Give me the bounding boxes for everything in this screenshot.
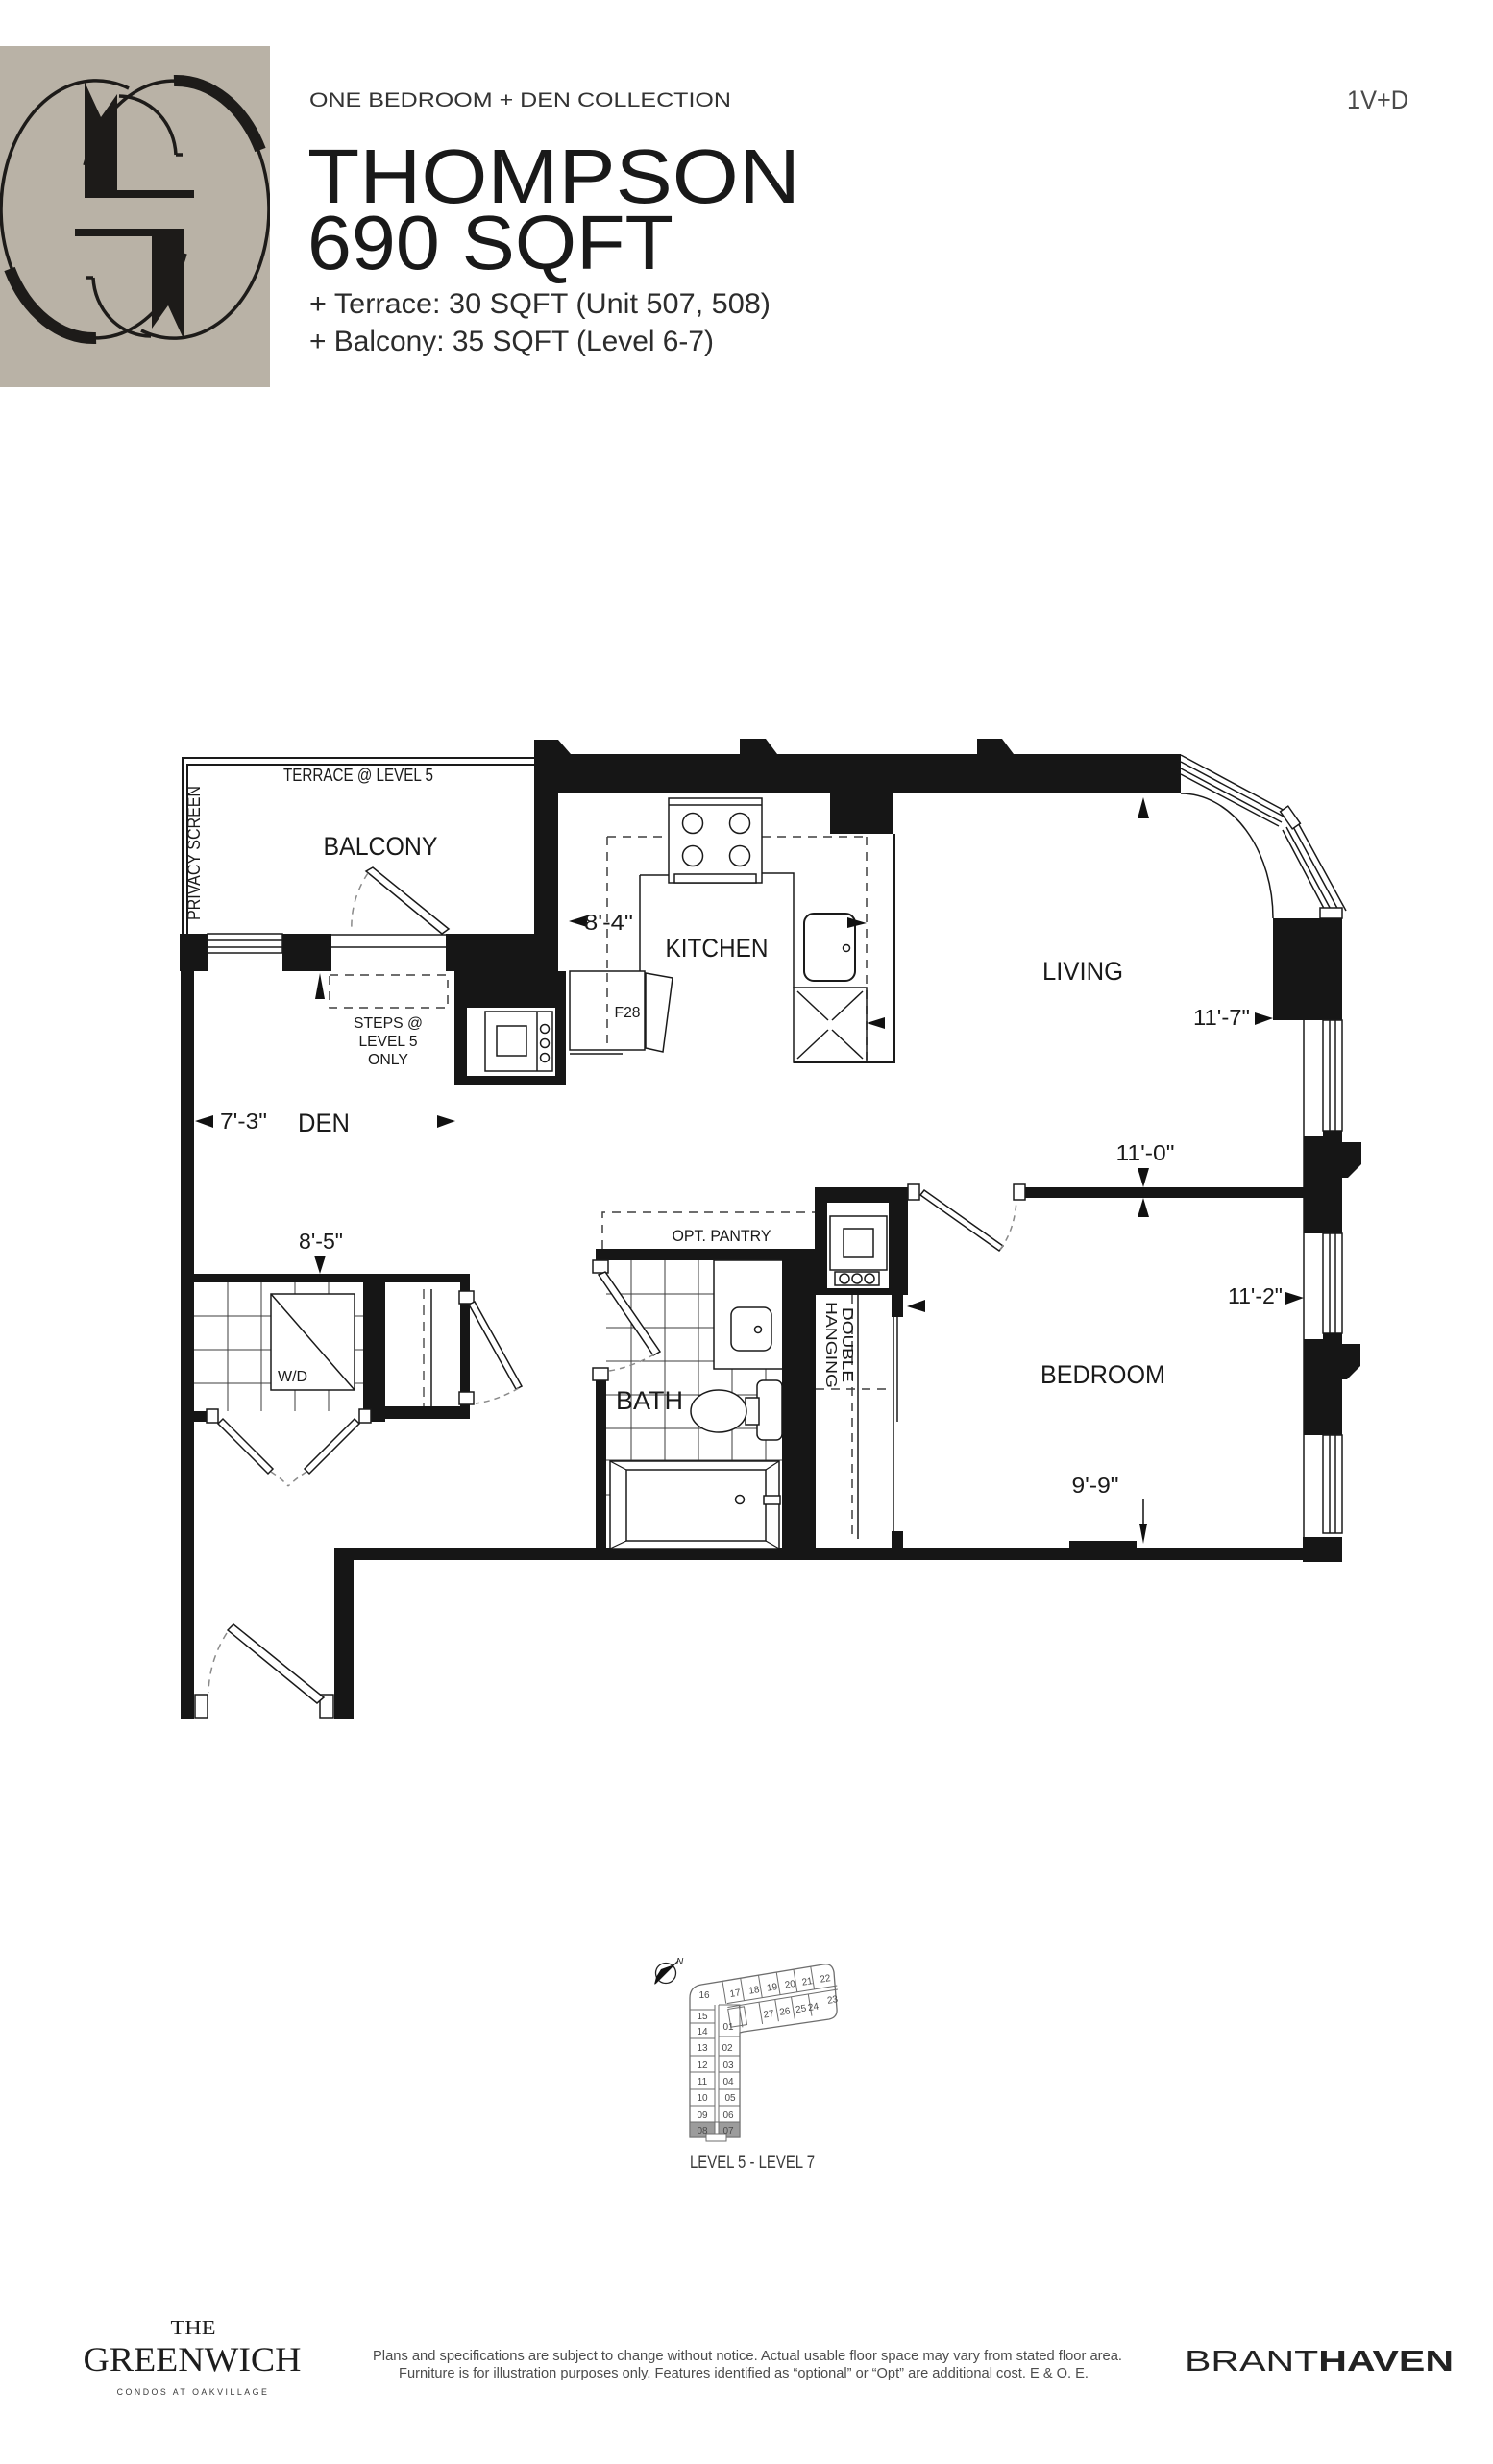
svg-text:26: 26 <box>779 2006 792 2018</box>
svg-text:25: 25 <box>795 2003 807 2015</box>
svg-text:08: 08 <box>697 2126 708 2136</box>
svg-text:27: 27 <box>763 2009 775 2021</box>
svg-text:Furniture is for illustration: Furniture is for illustration purposes o… <box>399 2366 1089 2381</box>
svg-text:BEDROOM: BEDROOM <box>1040 1360 1165 1389</box>
svg-text:LIVING: LIVING <box>1042 957 1123 986</box>
svg-text:1V+D: 1V+D <box>1347 85 1408 114</box>
svg-text:19: 19 <box>766 1982 778 1994</box>
svg-text:LEVEL 5: LEVEL 5 <box>359 1034 418 1050</box>
svg-text:Plans and specifications are s: Plans and specifications are subject to … <box>373 2349 1122 2364</box>
svg-text:22: 22 <box>820 1973 832 1986</box>
svg-text:10: 10 <box>697 2093 708 2104</box>
svg-text:11'-0": 11'-0" <box>1116 1140 1175 1165</box>
svg-text:ONLY: ONLY <box>368 1052 408 1068</box>
svg-text:13: 13 <box>697 2043 708 2054</box>
svg-text:03: 03 <box>722 2061 734 2071</box>
svg-text:STEPS @: STEPS @ <box>354 1015 423 1032</box>
svg-text:09: 09 <box>697 2110 708 2121</box>
svg-text:02: 02 <box>722 2043 733 2054</box>
svg-text:HANGING: HANGING <box>822 1302 839 1388</box>
svg-text:24: 24 <box>807 2001 820 2013</box>
svg-text:01: 01 <box>722 2022 734 2033</box>
svg-text:21: 21 <box>801 1976 814 1988</box>
svg-text:7'-3": 7'-3" <box>220 1109 267 1134</box>
svg-text:12: 12 <box>697 2061 708 2071</box>
svg-text:07: 07 <box>722 2126 734 2136</box>
svg-text:11: 11 <box>698 2077 708 2087</box>
svg-text:15: 15 <box>697 2012 708 2022</box>
svg-text:8'-4": 8'-4" <box>584 910 633 935</box>
svg-text:9'-9": 9'-9" <box>1072 1473 1119 1498</box>
svg-text:14: 14 <box>697 2027 708 2037</box>
svg-text:+ Balcony: 35 SQFT (Level 6-7): + Balcony: 35 SQFT (Level 6-7) <box>309 326 714 357</box>
svg-text:17: 17 <box>729 1988 742 2000</box>
svg-text:11'-2": 11'-2" <box>1228 1283 1283 1308</box>
svg-text:THE: THE <box>171 2316 216 2339</box>
svg-text:N: N <box>676 1957 684 1967</box>
svg-text:W/D: W/D <box>278 1369 307 1385</box>
svg-text:16: 16 <box>698 1990 710 2001</box>
svg-text:CONDOS AT OAKVILLAGE: CONDOS AT OAKVILLAGE <box>117 2387 270 2397</box>
svg-text:BRANTHAVEN: BRANTHAVEN <box>1185 2344 1454 2378</box>
svg-text:OPT. PANTRY: OPT. PANTRY <box>673 1228 771 1245</box>
svg-text:+ Terrace: 30 SQFT (Unit 507,: + Terrace: 30 SQFT (Unit 507, 508) <box>309 288 771 320</box>
svg-text:05: 05 <box>724 2093 736 2104</box>
svg-text:BALCONY: BALCONY <box>324 832 438 861</box>
svg-text:DOUBLE: DOUBLE <box>839 1307 855 1382</box>
svg-text:LEVEL 5 - LEVEL 7: LEVEL 5 - LEVEL 7 <box>690 2153 815 2173</box>
svg-text:F28: F28 <box>615 1005 641 1021</box>
svg-text:690 SQFT: 690 SQFT <box>307 200 673 285</box>
svg-text:23: 23 <box>826 1994 839 2007</box>
svg-text:06: 06 <box>722 2110 734 2121</box>
svg-text:ONE BEDROOM + DEN COLLECTION: ONE BEDROOM + DEN COLLECTION <box>309 89 731 111</box>
svg-text:PRIVACY SCREEN: PRIVACY SCREEN <box>184 786 204 920</box>
svg-text:TERRACE @ LEVEL 5: TERRACE @ LEVEL 5 <box>283 766 433 785</box>
svg-text:04: 04 <box>722 2077 734 2087</box>
svg-text:GREENWICH: GREENWICH <box>84 2340 302 2379</box>
svg-text:BATH: BATH <box>616 1386 683 1415</box>
svg-text:8'-5": 8'-5" <box>299 1229 343 1254</box>
svg-text:11'-7": 11'-7" <box>1193 1005 1250 1030</box>
svg-text:DEN: DEN <box>298 1109 350 1137</box>
svg-text:18: 18 <box>748 1985 761 1997</box>
svg-text:20: 20 <box>784 1979 796 1991</box>
svg-text:KITCHEN: KITCHEN <box>666 934 769 963</box>
